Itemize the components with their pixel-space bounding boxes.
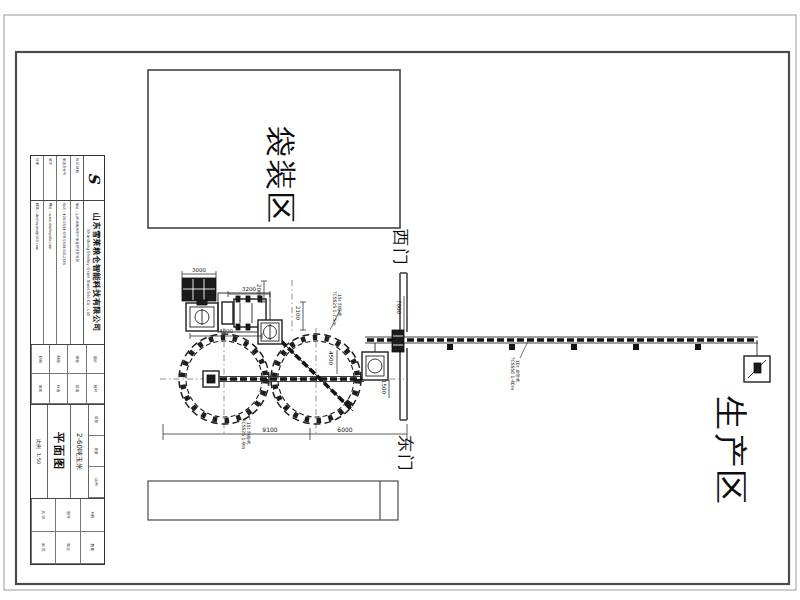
title-block-sheet-section: 材料数量图号版次共 张第 页 [31, 499, 104, 564]
company-contact-fine-print: 地址：山东省德州市宁津县经济开发区电话：400-0534-678 0534-50… [31, 201, 83, 344]
approval-cell-6: 日期 [31, 345, 49, 374]
stage-cell-2: 比例 [89, 467, 104, 498]
sheet-info-cell-4: 共 张 [31, 499, 55, 531]
approval-cell-7: 签名 [31, 374, 49, 403]
title-block: S 标记 处数更改文件号签字日期 山东雪莱粮仓智能科技有限公司 Shandong… [30, 155, 105, 565]
company-name-cn: 山东雪莱粮仓智能科技有限公司 [91, 213, 102, 332]
approval-cell-5: 标准 [49, 374, 67, 403]
title-block-title-section: 阶段质量比例 2-60吨玉米 平面图 比例 1:50 [31, 405, 104, 500]
sheet-info-cell-1: 数量 [80, 532, 104, 564]
bucket-elevator-2 [258, 320, 282, 344]
approval-grid: 设计校对审核批准制图标准日期签名 [31, 345, 104, 404]
label-scraper-1-model: TCSS25 1-7.5m [332, 291, 337, 326]
approval-cell-1: 校对 [86, 374, 104, 403]
dim-1500: 1500 [381, 380, 387, 394]
drawing-scale: 比例 1:50 [31, 405, 47, 499]
dim-3200: 3200 [242, 287, 256, 293]
dim-9100: 9100 [262, 427, 277, 433]
label-scraper-1-type: 15t 刮板机 [337, 294, 342, 316]
sheet-info-cell-3: 版次 [55, 532, 79, 564]
fine-print-row-1: 电话：400-0534-678 0534-5012345 [57, 201, 70, 344]
drawing-title: 平面图 [47, 405, 70, 499]
stage-cells: 阶段质量比例 [88, 405, 104, 499]
revision-row-2: 签字 [43, 156, 56, 200]
revision-row-0: 标记 处数 [70, 156, 83, 200]
title-block-company-section: 山东雪莱粮仓智能科技有限公司 Shandong Shelley Grain St… [31, 201, 104, 345]
lower-building [148, 481, 398, 520]
dim-6000: 6000 [337, 427, 352, 433]
dim-7000: 7000 [396, 300, 402, 314]
sheet-info-cell-0: 材料 [80, 499, 104, 531]
bucket-elevator-1 [186, 300, 218, 331]
company-logo-icon: S [83, 156, 104, 200]
project-name: 2-60吨玉米 [70, 405, 88, 499]
approval-cell-0: 设计 [86, 345, 104, 374]
approval-cell-3: 批准 [68, 374, 86, 403]
revision-rows: 标记 处数更改文件号签字日期 [31, 156, 83, 200]
drawing-sheet: 袋装区 生产区 西门 东门 30002000320021004000700045… [0, 0, 800, 600]
label-belt-type: 10t 皮带机 [515, 360, 520, 382]
label-scraper-2-type: 15t 刮板机 [246, 422, 251, 444]
dim-2100: 2100 [295, 306, 301, 320]
approval-cell-4: 制图 [49, 345, 67, 374]
scale-value: 1:50 [36, 453, 42, 464]
bucket-elevator-3 [362, 343, 388, 380]
dim-3000: 3000 [192, 268, 206, 274]
fine-print-row-0: 地址：山东省德州市宁津县经济开发区 [70, 201, 83, 344]
fine-print-row-3: 邮箱：shelleysilo@163.com [31, 201, 43, 344]
revision-row-1: 更改文件号 [57, 156, 70, 200]
fine-print-row-2: 网址：www.shelleysilo.com [43, 201, 56, 344]
dim-2000: 2000 [256, 284, 262, 298]
bagging-area-label: 袋装区 [265, 126, 296, 225]
wall-opening-equipment [392, 330, 404, 352]
control-cabinet [182, 278, 216, 301]
sheet-info-cell-5: 第 页 [31, 532, 55, 564]
discharge-chute [744, 356, 770, 382]
approval-cell-2: 审核 [68, 345, 86, 374]
production-area-label: 生产区 [714, 396, 748, 507]
west-gate-label: 西门 [392, 229, 409, 267]
scale-label: 比例 [36, 439, 42, 449]
label-belt-model: TCSS50 1-40m [510, 357, 515, 390]
sheet-info-cell-2: 图号 [55, 499, 79, 531]
stage-cell-0: 阶段 [89, 405, 104, 436]
revision-row-3: 日期 [31, 156, 43, 200]
dim-4500: 4500 [328, 351, 334, 365]
east-gate-label: 东门 [397, 435, 414, 473]
title-block-logo-section: S 标记 处数更改文件号签字日期 [31, 156, 104, 201]
title-block-approval-section: 设计校对审核批准制图标准日期签名 [31, 345, 104, 405]
company-name: 山东雪莱粮仓智能科技有限公司 Shandong Shelley Grain St… [83, 201, 104, 344]
belt-conveyor [365, 337, 758, 356]
dim-4000: 4000 [219, 329, 233, 335]
company-name-en: Shandong Shelley Grain Steel Silo Co., L… [86, 229, 91, 315]
label-scraper-2-model: TCSS25 1-9m [241, 419, 246, 449]
stage-cell-1: 质量 [89, 436, 104, 467]
sheet-info-grid: 材料数量图号版次共 张第 页 [31, 499, 104, 564]
